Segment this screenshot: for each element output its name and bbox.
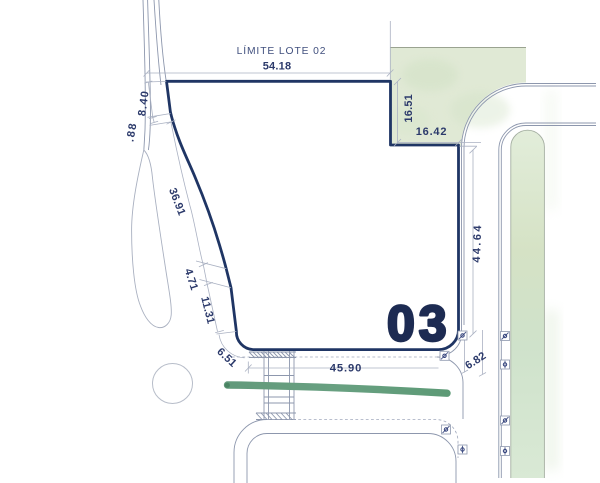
svg-text:16.51: 16.51 — [403, 94, 415, 123]
svg-text:LÍMITE LOTE 02: LÍMITE LOTE 02 — [237, 44, 327, 57]
svg-text:54.18: 54.18 — [263, 61, 292, 73]
svg-text:03: 03 — [387, 295, 451, 351]
svg-text:45.90: 45.90 — [330, 363, 363, 375]
svg-text:44.64: 44.64 — [471, 223, 484, 263]
svg-text:16.42: 16.42 — [416, 126, 448, 138]
